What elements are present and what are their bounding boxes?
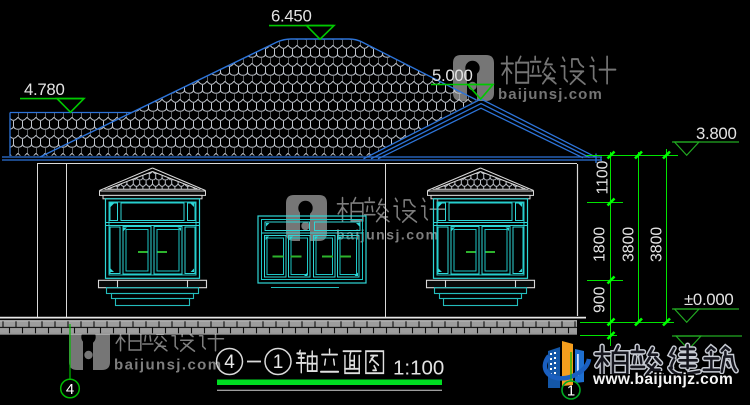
svg-text:www.baijunjz.com: www.baijunjz.com <box>592 371 733 388</box>
svg-text:baijunsj.com: baijunsj.com <box>498 86 603 103</box>
svg-text:3800: 3800 <box>621 227 638 262</box>
svg-text:±0.000: ±0.000 <box>684 290 733 309</box>
svg-text:5.000: 5.000 <box>432 66 473 85</box>
svg-text:1100: 1100 <box>595 160 612 194</box>
svg-text:4: 4 <box>66 381 74 398</box>
svg-text:4: 4 <box>224 352 235 373</box>
svg-text:4.780: 4.780 <box>24 80 65 99</box>
svg-text:1:100: 1:100 <box>393 357 444 380</box>
svg-text:baijunsj.com: baijunsj.com <box>114 357 223 374</box>
svg-text:6.450: 6.450 <box>271 7 312 26</box>
svg-text:3.800: 3.800 <box>696 124 737 143</box>
svg-text:900: 900 <box>592 286 609 313</box>
svg-text:3800: 3800 <box>649 227 666 262</box>
svg-text:1: 1 <box>567 383 575 400</box>
svg-text:1: 1 <box>273 352 284 373</box>
svg-text:baijunsj.com: baijunsj.com <box>336 227 440 243</box>
svg-text:1800: 1800 <box>592 227 609 262</box>
